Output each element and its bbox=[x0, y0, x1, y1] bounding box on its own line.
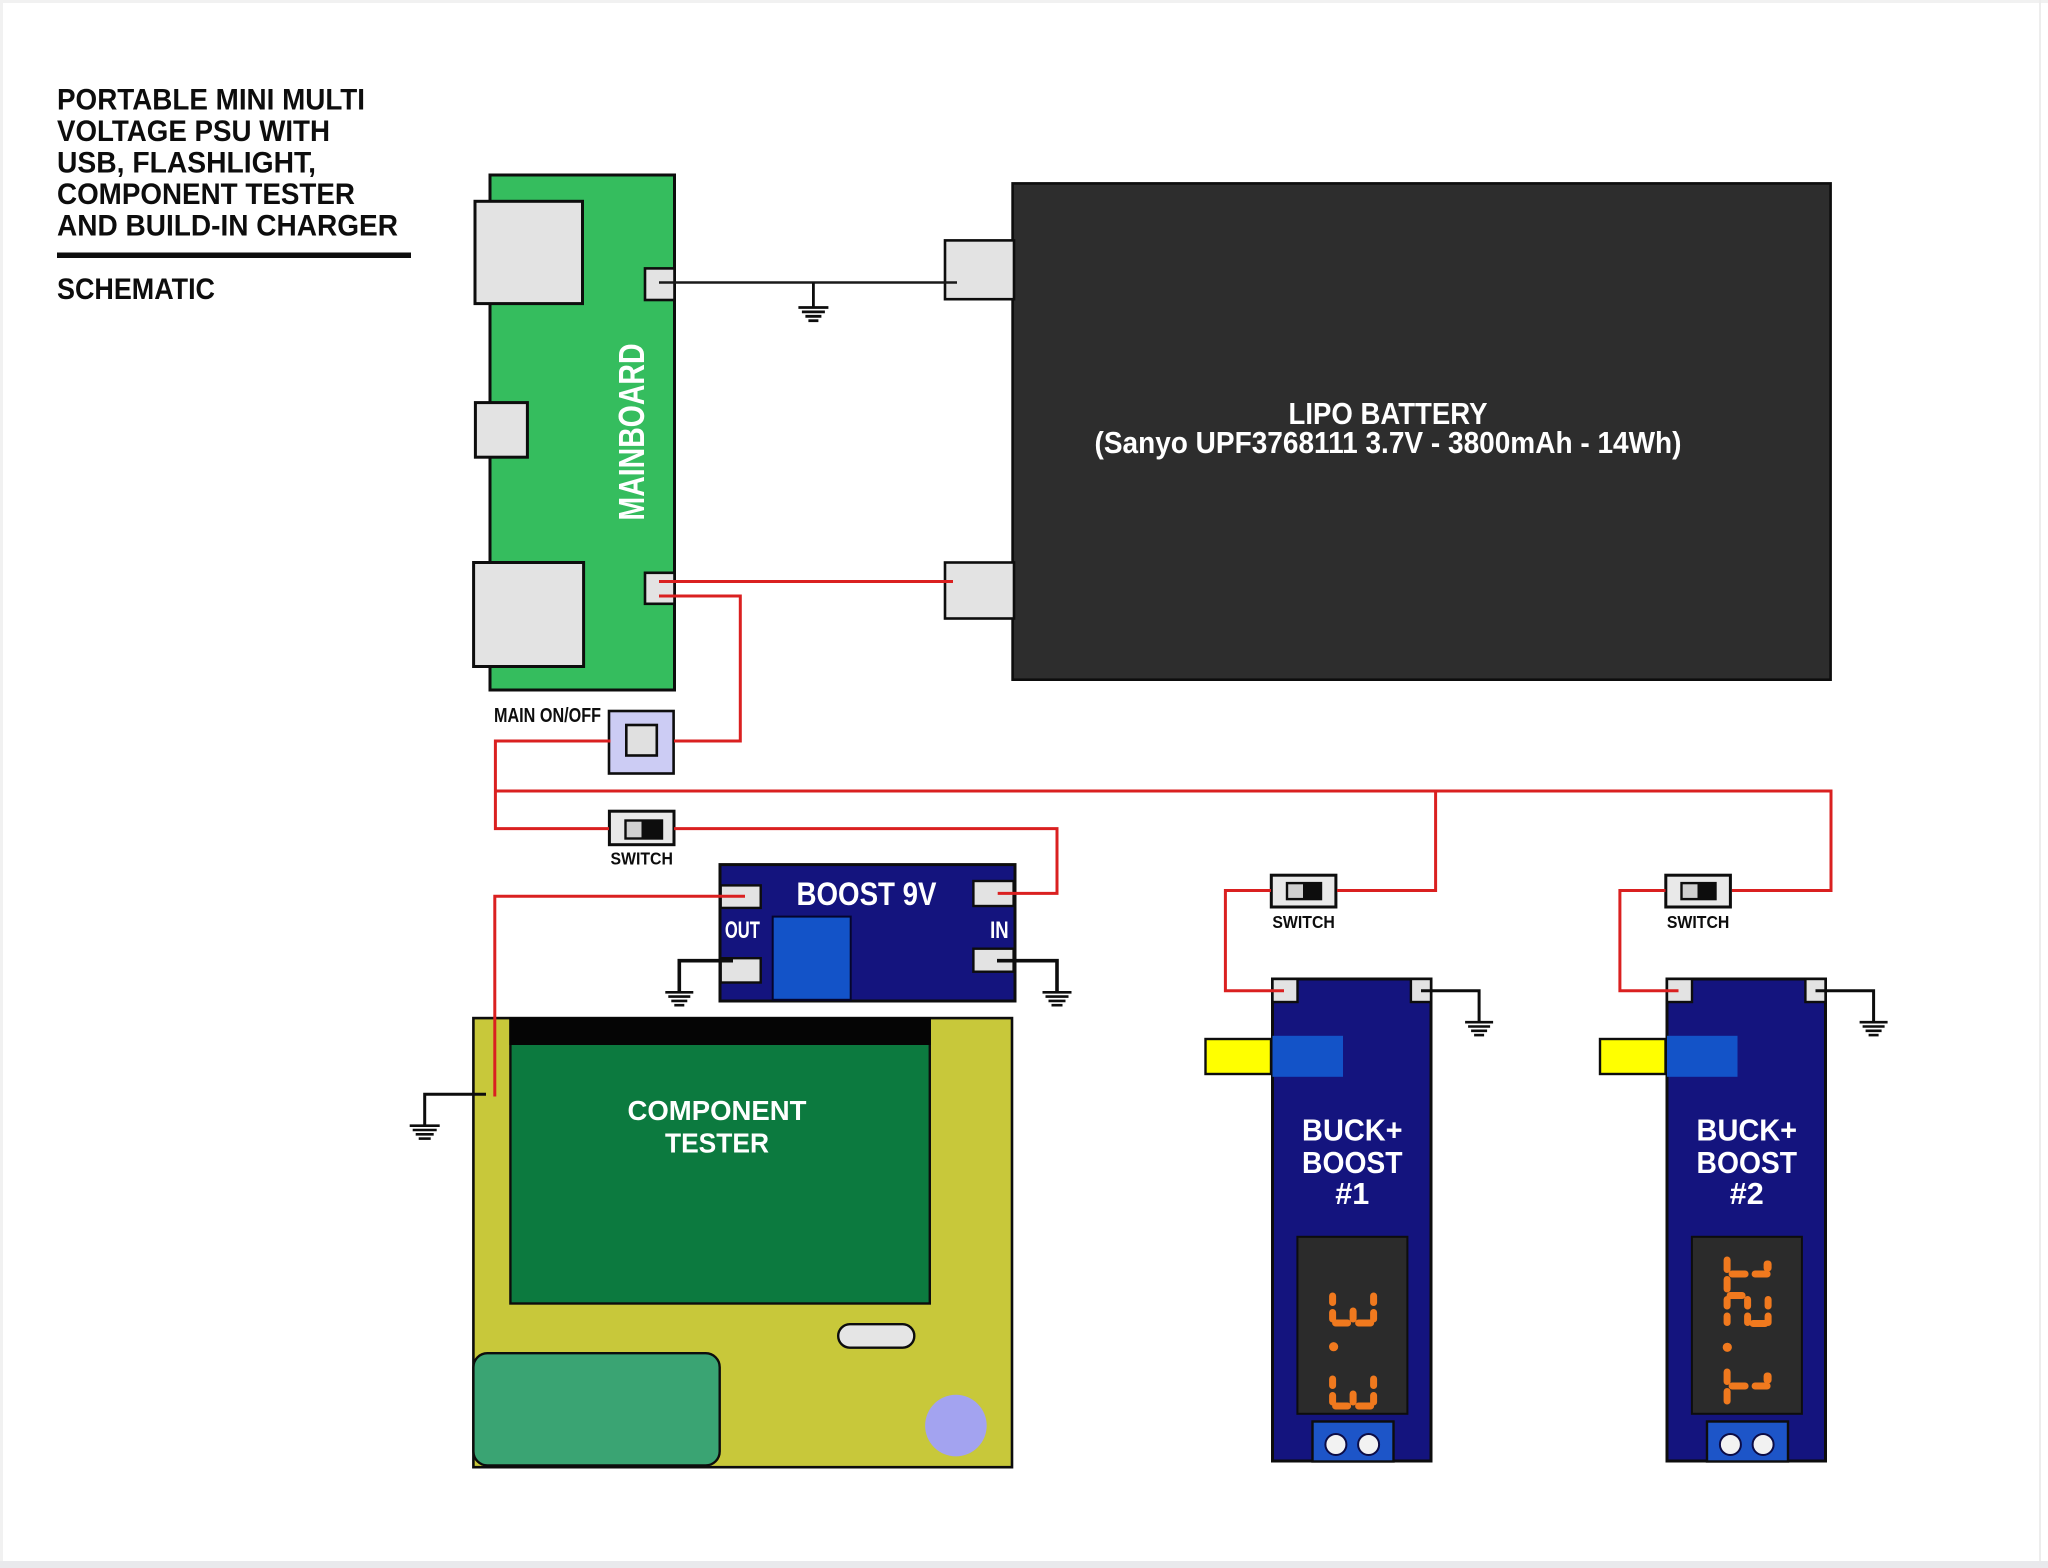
svg-text:BUCK+: BUCK+ bbox=[1697, 1113, 1798, 1148]
svg-text:COMPONENT: COMPONENT bbox=[628, 1095, 807, 1126]
svg-text:#2: #2 bbox=[1730, 1176, 1764, 1211]
svg-text:SCHEMATIC: SCHEMATIC bbox=[57, 273, 215, 306]
svg-text:SWITCH: SWITCH bbox=[610, 849, 673, 869]
svg-text:SWITCH: SWITCH bbox=[1667, 912, 1730, 932]
svg-text:OUT: OUT bbox=[725, 917, 760, 944]
svg-text:TESTER: TESTER bbox=[665, 1128, 769, 1159]
svg-text:MAINBOARD: MAINBOARD bbox=[611, 344, 652, 521]
svg-text:AND BUILD-IN CHARGER: AND BUILD-IN CHARGER bbox=[57, 210, 398, 243]
svg-text:BOOST: BOOST bbox=[1697, 1145, 1798, 1180]
svg-text:IN: IN bbox=[990, 917, 1009, 944]
svg-text:BOOST: BOOST bbox=[1302, 1145, 1403, 1180]
svg-text:VOLTAGE PSU WITH: VOLTAGE PSU WITH bbox=[57, 115, 330, 148]
svg-text:USB, FLASHLIGHT,: USB, FLASHLIGHT, bbox=[57, 147, 316, 180]
svg-text:BOOST 9V: BOOST 9V bbox=[797, 876, 938, 912]
svg-text:MAIN ON/OFF: MAIN ON/OFF bbox=[494, 705, 601, 727]
svg-text:COMPONENT TESTER: COMPONENT TESTER bbox=[57, 178, 355, 211]
svg-text:BUCK+: BUCK+ bbox=[1302, 1113, 1403, 1148]
svg-text:SWITCH: SWITCH bbox=[1272, 912, 1335, 932]
svg-text:PORTABLE MINI MULTI: PORTABLE MINI MULTI bbox=[57, 84, 365, 117]
svg-text:(Sanyo UPF3768111 3.7V - 3800m: (Sanyo UPF3768111 3.7V - 3800mAh - 14Wh) bbox=[1095, 425, 1682, 460]
svg-text:#1: #1 bbox=[1335, 1176, 1369, 1211]
